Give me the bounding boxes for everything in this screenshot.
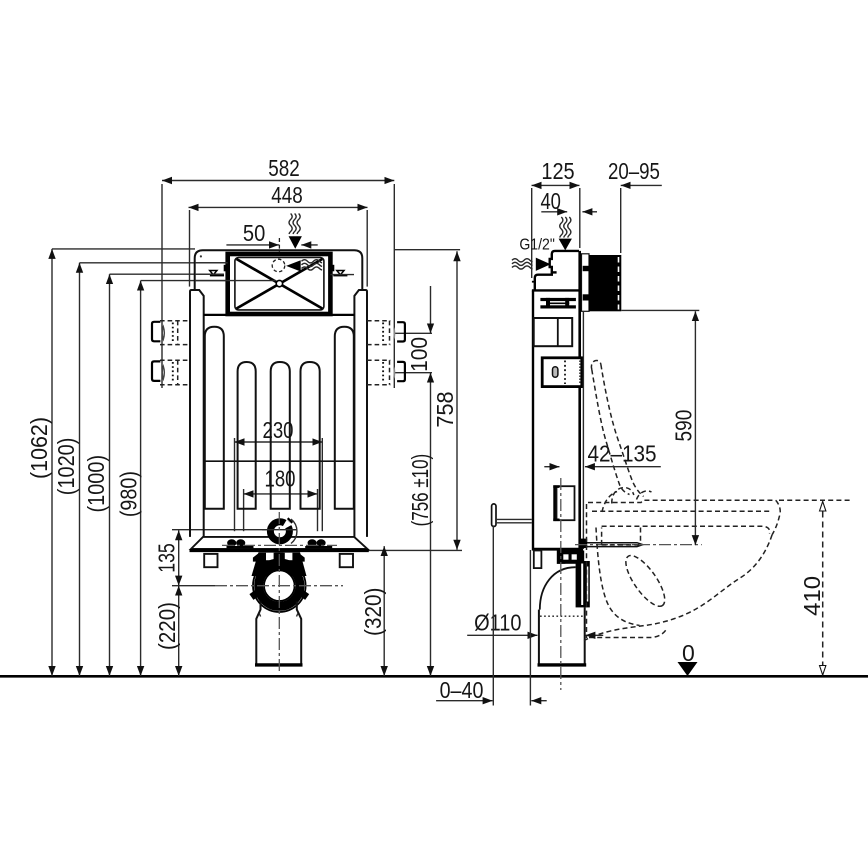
svg-text:20–95: 20–95	[608, 158, 660, 184]
svg-text:50: 50	[243, 220, 265, 246]
svg-text:582: 582	[268, 155, 300, 181]
svg-text:(1020): (1020)	[53, 438, 79, 496]
svg-text:410: 410	[799, 576, 825, 616]
svg-text:180: 180	[265, 466, 296, 492]
svg-text:(980): (980)	[116, 471, 142, 517]
svg-text:0: 0	[682, 640, 695, 666]
svg-text:590: 590	[671, 410, 697, 442]
svg-text:135: 135	[154, 543, 180, 573]
svg-text:(320): (320)	[360, 588, 386, 636]
svg-text:40: 40	[540, 188, 561, 214]
svg-text:(1062): (1062)	[26, 417, 52, 479]
svg-text:(220): (220)	[154, 602, 180, 650]
svg-text:42–135: 42–135	[587, 441, 656, 467]
svg-text:758: 758	[432, 391, 458, 427]
svg-text:100: 100	[406, 337, 432, 372]
svg-text:G1/2": G1/2"	[519, 237, 555, 254]
svg-text:448: 448	[271, 182, 303, 208]
svg-text:125: 125	[541, 158, 574, 184]
svg-text:Ø110: Ø110	[474, 610, 521, 636]
svg-text:0–40: 0–40	[440, 677, 484, 703]
svg-text:(756 ±10): (756 ±10)	[407, 454, 433, 527]
svg-text:(1000): (1000)	[83, 455, 109, 513]
